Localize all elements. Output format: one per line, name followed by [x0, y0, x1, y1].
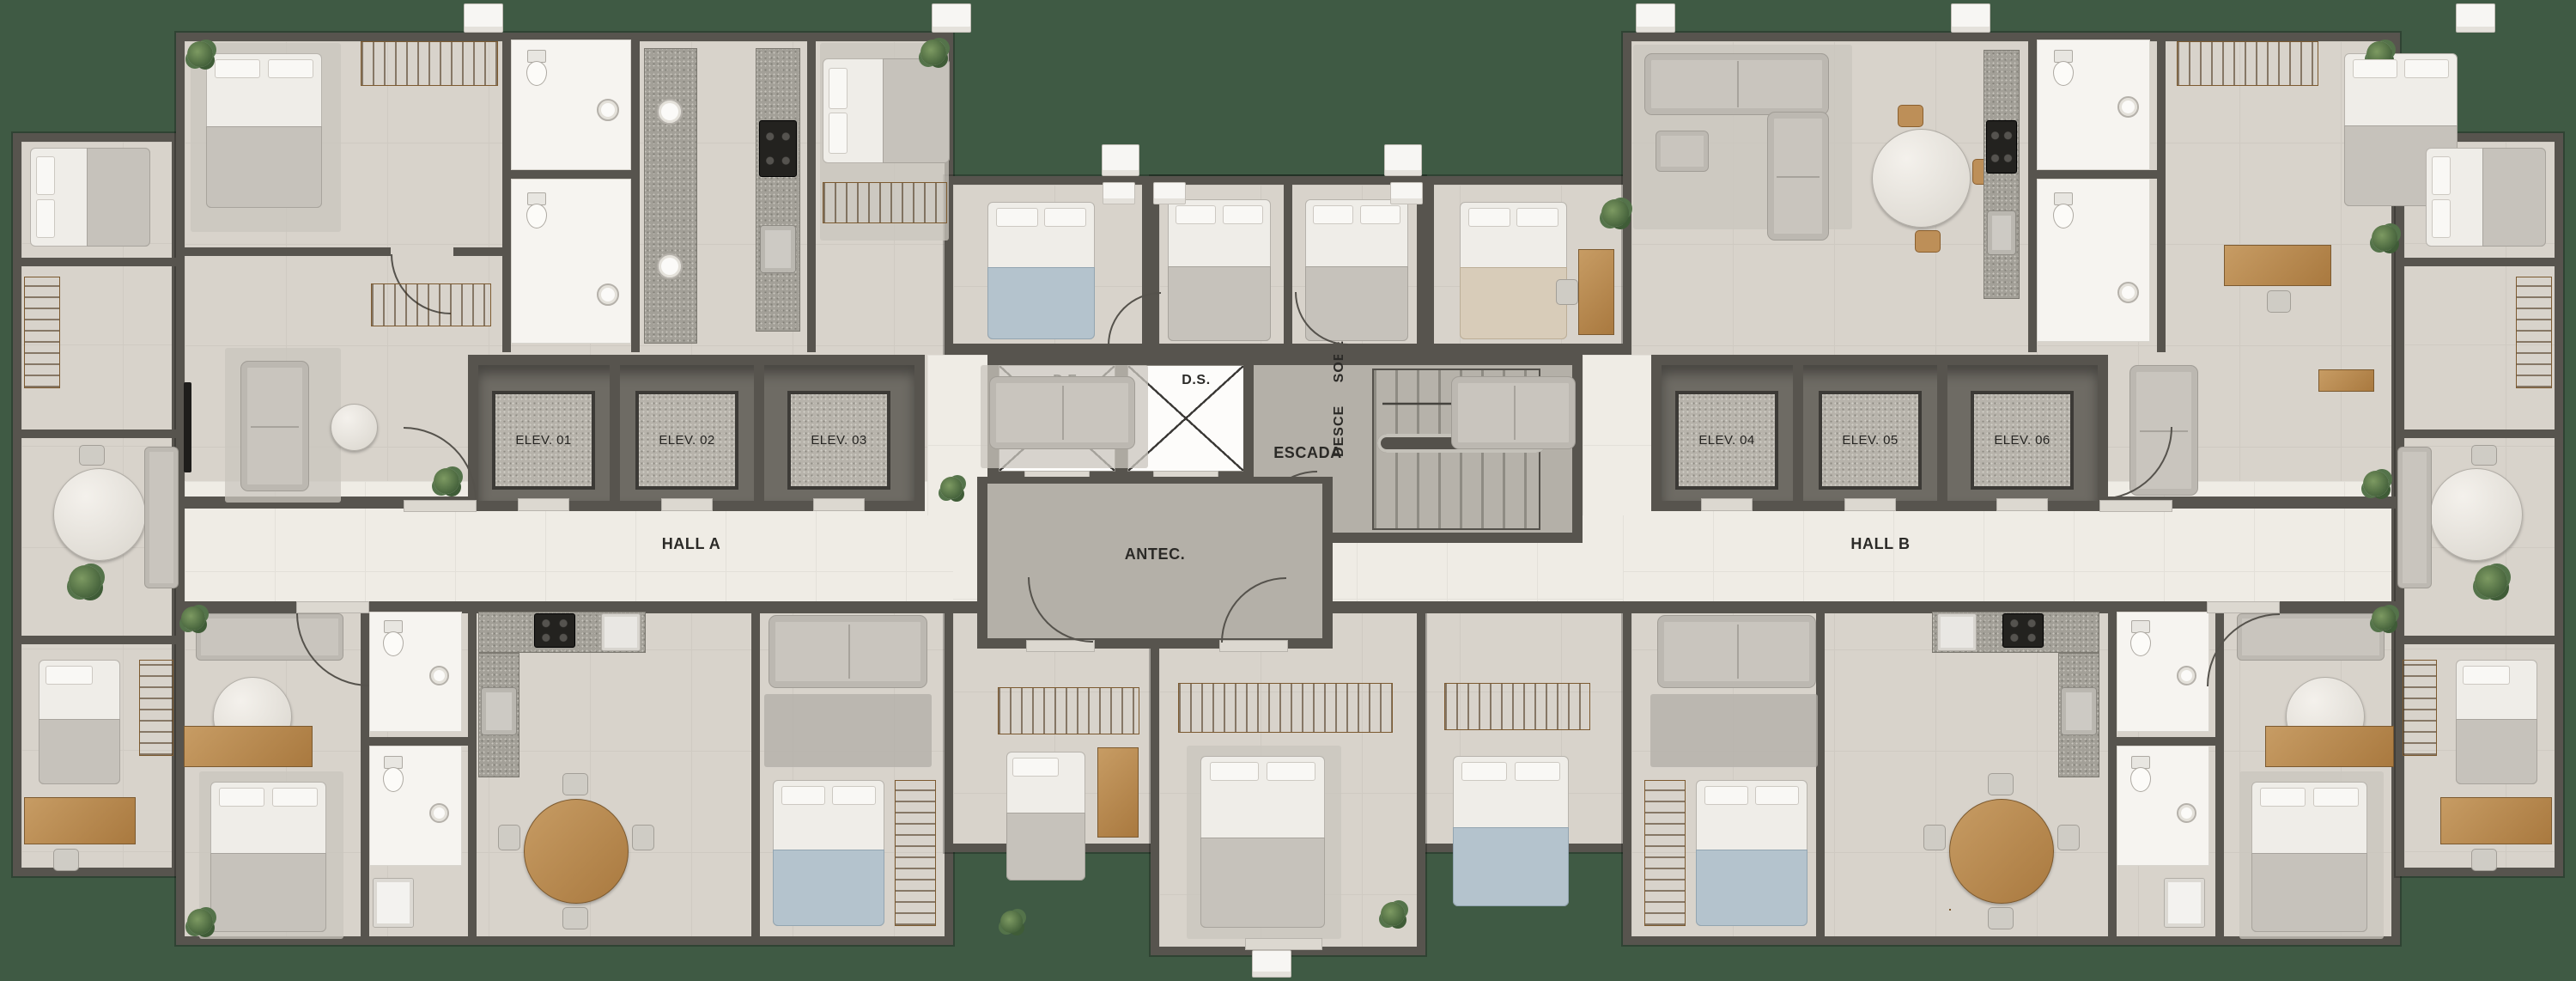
- wall: [2396, 430, 2563, 438]
- pillow: [1461, 762, 1507, 781]
- wall: [807, 33, 816, 352]
- single-bed: [1006, 752, 1085, 880]
- elevator-door-sill: [1701, 498, 1753, 511]
- elevator-car-06: ELEV. 06: [1971, 391, 2074, 490]
- wall-ac-unit: [1103, 182, 1135, 204]
- plant: [920, 40, 946, 65]
- kitchen-counter: [1984, 50, 2020, 299]
- wardrobe: [2177, 41, 2318, 86]
- fridge: [601, 613, 641, 651]
- chair: [2471, 849, 2497, 871]
- pillow: [832, 786, 876, 805]
- pillow: [1313, 205, 1353, 224]
- chair: [2057, 825, 2080, 850]
- roof-ac-unit: [932, 3, 971, 33]
- pillow: [272, 788, 318, 807]
- sofa: [240, 361, 309, 491]
- roof-ac-unit: [464, 3, 503, 33]
- pillow: [1223, 205, 1263, 224]
- chair: [562, 907, 588, 929]
- roof-ac-unit: [1252, 950, 1291, 978]
- wall: [2396, 636, 2563, 644]
- desk: [2440, 797, 2552, 844]
- plant: [69, 565, 101, 598]
- pillow: [2404, 59, 2449, 78]
- wardrobe: [371, 283, 491, 326]
- wardrobe: [2403, 660, 2437, 756]
- fridge: [1937, 613, 1977, 651]
- elevator-02-label: ELEV. 02: [659, 433, 714, 448]
- vanity-sink: [657, 99, 683, 125]
- wall: [1816, 601, 1825, 943]
- pillow: [2463, 666, 2511, 685]
- desk: [2265, 726, 2394, 767]
- tv: [184, 382, 191, 472]
- pillow: [781, 786, 825, 805]
- roof-ac-unit: [1384, 144, 1422, 176]
- door-sill: [2099, 500, 2172, 512]
- double-bed: [1453, 756, 1569, 906]
- wardrobe: [2516, 277, 2552, 388]
- plant: [1381, 902, 1405, 926]
- double-bed: [823, 58, 950, 163]
- plant: [2372, 225, 2397, 251]
- vanity-counter: [644, 48, 697, 344]
- plant: [940, 477, 963, 499]
- door-sill: [296, 601, 369, 613]
- chair: [632, 825, 654, 850]
- double-bed: [1200, 756, 1325, 928]
- wardrobe: [823, 182, 947, 223]
- wall: [2028, 33, 2037, 352]
- pillow: [829, 68, 848, 109]
- chair: [2267, 290, 2291, 313]
- elevator-04-label: ELEV. 04: [1698, 433, 1754, 448]
- hall-b-label: HALL B: [1850, 536, 1910, 551]
- chair: [1556, 279, 1578, 305]
- sideboard: [1949, 909, 1951, 911]
- double-bed: [206, 53, 322, 208]
- rug: [1650, 694, 1818, 767]
- coffee-table: [331, 404, 378, 451]
- single-bed: [2456, 660, 2537, 784]
- wardrobe: [1644, 780, 1686, 926]
- vanity-sink: [657, 253, 683, 279]
- corner-sofa: [1767, 112, 1829, 241]
- double-bed: [1168, 199, 1271, 341]
- elevator-01-label: ELEV. 01: [515, 433, 571, 448]
- pillow: [1044, 208, 1086, 227]
- hall-a-label: HALL A: [662, 536, 721, 551]
- toilet: [526, 192, 548, 228]
- stove: [1986, 120, 2017, 174]
- wardrobe: [998, 687, 1139, 734]
- bench-seat: [144, 447, 179, 588]
- desk: [184, 726, 313, 767]
- floor-plan: ELEV. 01 ELEV. 02 ELEV. 03 ELEV. 04 ELEV…: [0, 0, 2576, 981]
- stove: [2002, 613, 2044, 648]
- bathroom-sink: [2117, 282, 2139, 303]
- pillow: [219, 788, 264, 807]
- tv-console: [2318, 369, 2374, 392]
- shaft-divider: [1793, 365, 1803, 501]
- double-bed: [2251, 782, 2367, 932]
- pillow: [1267, 762, 1315, 781]
- elevator-car-05: ELEV. 05: [1819, 391, 1922, 490]
- pillow: [1012, 758, 1059, 777]
- wall-ac-unit: [1390, 182, 1423, 204]
- wall: [1425, 176, 1434, 348]
- wall: [13, 636, 180, 644]
- elevator-car-02: ELEV. 02: [635, 391, 738, 490]
- wall: [2108, 737, 2215, 746]
- chair: [53, 849, 79, 871]
- single-bed: [39, 660, 120, 784]
- wall: [2396, 258, 2563, 266]
- wall: [1151, 649, 1159, 945]
- pillow: [215, 59, 260, 78]
- elevator-03-label: ELEV. 03: [811, 433, 866, 448]
- plant: [2475, 565, 2507, 598]
- wall: [2028, 170, 2157, 179]
- bench-seat: [2397, 447, 2432, 588]
- stove: [759, 120, 797, 177]
- corner-sofa: [1644, 53, 1829, 115]
- pillow: [2353, 59, 2397, 78]
- elevator-car-01: ELEV. 01: [492, 391, 595, 490]
- sofa: [769, 615, 927, 688]
- bathroom-sink: [429, 803, 449, 823]
- sofa: [989, 376, 1135, 449]
- chair: [498, 825, 520, 850]
- wall: [453, 247, 502, 256]
- chair: [1988, 907, 2014, 929]
- pillow: [1360, 205, 1400, 224]
- double-bed: [30, 148, 150, 247]
- pillow: [2313, 788, 2359, 807]
- roof-ac-unit: [2456, 3, 2495, 33]
- rug: [764, 694, 932, 767]
- dining-table: [1949, 799, 2054, 904]
- pillow: [996, 208, 1038, 227]
- escada-label: ESCADA: [1273, 445, 1342, 460]
- elevator-car-03: ELEV. 03: [787, 391, 890, 490]
- plant: [187, 41, 213, 67]
- elevator-door-sill: [1844, 498, 1896, 511]
- wardrobe: [1178, 683, 1393, 733]
- shaft-divider: [610, 365, 620, 501]
- pillow: [1515, 762, 1560, 781]
- elevator-05-label: ELEV. 05: [1842, 433, 1898, 448]
- antec-label: ANTEC.: [1125, 546, 1186, 562]
- pillow: [36, 199, 55, 238]
- stove: [534, 613, 575, 648]
- chair: [1898, 105, 1923, 127]
- plant: [1000, 911, 1023, 933]
- chair: [1915, 230, 1941, 253]
- pillow: [36, 156, 55, 195]
- kitchen-counter: [756, 48, 800, 332]
- double-bed: [1696, 780, 1807, 926]
- double-bed: [773, 780, 884, 926]
- toilet: [2129, 620, 2152, 656]
- plant: [187, 909, 213, 935]
- wall: [468, 601, 477, 943]
- wardrobe: [361, 41, 498, 86]
- washer: [2164, 878, 2205, 928]
- elevator-car-04: ELEV. 04: [1675, 391, 1778, 490]
- pillow: [2432, 156, 2451, 195]
- pillow: [1704, 786, 1748, 805]
- elevator-door-sill: [813, 498, 865, 511]
- toilet: [2129, 756, 2152, 792]
- wall: [176, 247, 391, 256]
- door-sill: [1245, 938, 1322, 950]
- desk: [1578, 249, 1614, 335]
- bathroom-sink: [2117, 96, 2139, 118]
- kitchen-sink: [1987, 210, 2016, 255]
- dining-table: [2430, 468, 2523, 561]
- wall: [631, 33, 640, 352]
- pillow: [268, 59, 313, 78]
- pillow: [1176, 205, 1216, 224]
- plant: [181, 606, 205, 631]
- wardrobe: [895, 780, 936, 926]
- chair: [2471, 445, 2497, 466]
- desk: [1097, 747, 1139, 838]
- chair: [1988, 773, 2014, 795]
- wardrobe: [24, 277, 60, 388]
- wall: [1284, 176, 1292, 348]
- sofa: [1657, 615, 1816, 688]
- bathroom-sink: [429, 666, 449, 685]
- roof-ac-unit: [1636, 3, 1675, 33]
- wall: [502, 33, 511, 352]
- wall: [361, 737, 468, 746]
- wall: [502, 170, 640, 179]
- kitchen-sink: [481, 687, 517, 735]
- elevator-06-label: ELEV. 06: [1994, 433, 2050, 448]
- kitchen-sink: [2061, 687, 2097, 735]
- wall: [13, 258, 180, 266]
- pillow: [1516, 208, 1558, 227]
- pillow: [2260, 788, 2306, 807]
- wall-ac-unit: [1153, 182, 1186, 204]
- toilet: [2052, 50, 2075, 86]
- toilet: [382, 756, 404, 792]
- ds-label: D.S.: [1182, 374, 1211, 387]
- plant: [1601, 199, 1629, 227]
- pillow: [1468, 208, 1510, 227]
- wardrobe: [139, 660, 173, 756]
- double-bed: [1460, 202, 1567, 339]
- pillow: [829, 113, 848, 154]
- pillow: [1755, 786, 1799, 805]
- chair: [562, 773, 588, 795]
- toilet: [2052, 192, 2075, 228]
- roof-ac-unit: [1951, 3, 1990, 33]
- kitchen-sink: [760, 225, 796, 273]
- desk: [2224, 245, 2331, 286]
- dining-table: [53, 468, 146, 561]
- bathroom-sink: [597, 99, 619, 121]
- shaft-divider: [1937, 365, 1947, 501]
- ottoman: [1656, 131, 1709, 172]
- chair: [1923, 825, 1946, 850]
- dining-table: [524, 799, 629, 904]
- bathroom-sink: [597, 283, 619, 306]
- bathroom-sink: [2177, 666, 2196, 685]
- pillow: [46, 666, 94, 685]
- dining-table: [1872, 129, 1971, 228]
- toilet: [526, 50, 548, 86]
- wall: [2157, 33, 2166, 352]
- shaft-divider: [754, 365, 764, 501]
- plant: [2372, 606, 2396, 631]
- double-bed: [987, 202, 1095, 339]
- elevator-door-sill: [661, 498, 713, 511]
- door-sill: [404, 500, 477, 512]
- wall: [1417, 649, 1425, 945]
- wall: [751, 601, 760, 943]
- door-sill: [2207, 601, 2280, 613]
- pillow: [2432, 199, 2451, 238]
- bathroom-sink: [2177, 803, 2196, 823]
- roof-ac-unit: [1102, 144, 1139, 176]
- elevator-door-sill: [1996, 498, 2048, 511]
- elevator-door-sill: [518, 498, 569, 511]
- wall: [2108, 601, 2117, 943]
- wardrobe: [1444, 683, 1590, 730]
- desk: [24, 797, 136, 844]
- plant: [2363, 471, 2389, 497]
- pillow: [1210, 762, 1259, 781]
- wall: [13, 430, 180, 438]
- washer: [373, 878, 414, 928]
- double-bed: [2426, 148, 2546, 247]
- double-bed: [210, 782, 326, 932]
- sofa: [1451, 376, 1576, 449]
- chair: [79, 445, 105, 466]
- toilet: [382, 620, 404, 656]
